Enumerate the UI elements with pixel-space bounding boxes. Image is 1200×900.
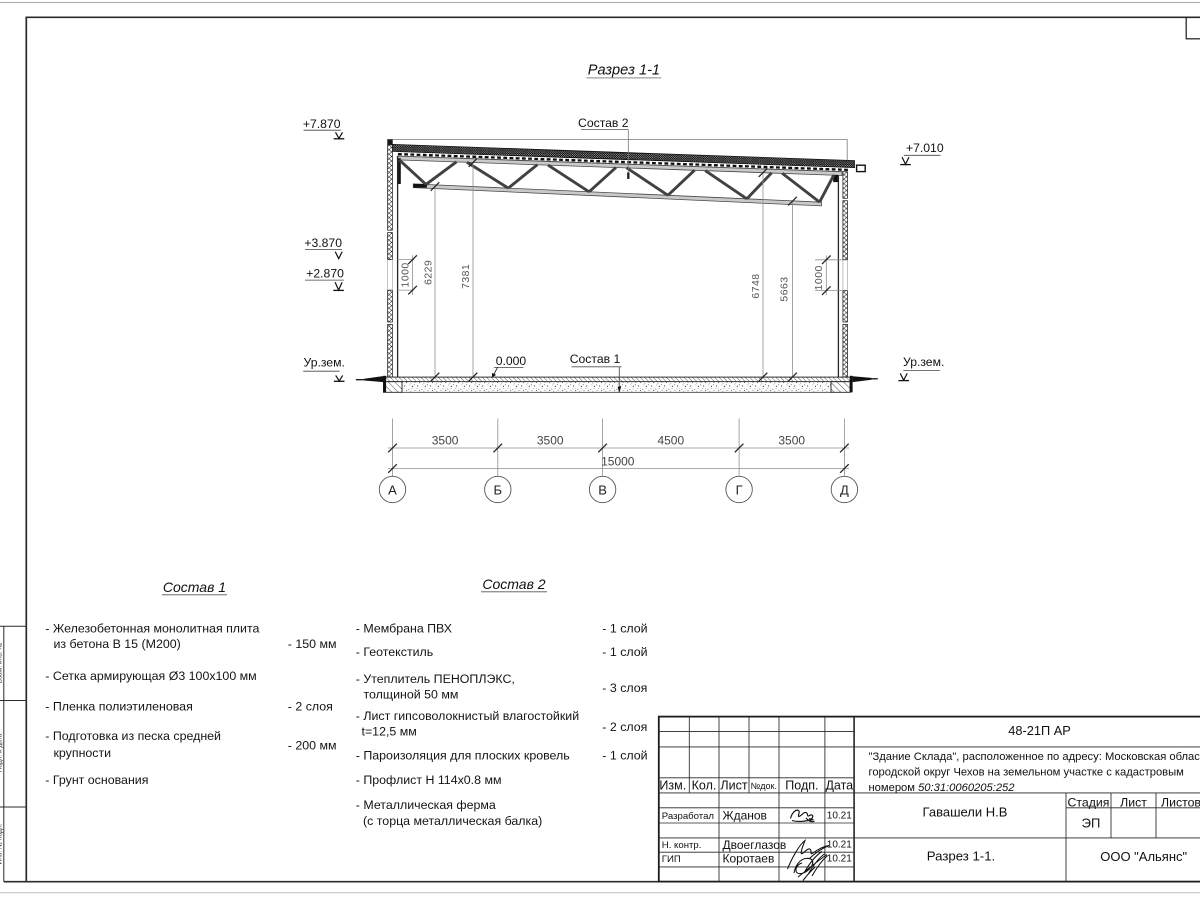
svg-text:Взам. инв. №: Взам. инв. № xyxy=(0,643,4,684)
svg-text:Состав 1: Состав 1 xyxy=(570,352,621,366)
svg-text:Состав 1: Состав 1 xyxy=(163,579,226,595)
svg-text:10.21: 10.21 xyxy=(827,854,852,865)
svg-text:из бетона В 15 (М200): из бетона В 15 (М200) xyxy=(54,637,181,651)
svg-text:4500: 4500 xyxy=(657,433,684,447)
svg-text:- Профлист Н 114х0.8 мм: - Профлист Н 114х0.8 мм xyxy=(356,773,502,787)
svg-text:- Лист гипсоволокнистый влагос: - Лист гипсоволокнистый влагостойкий xyxy=(356,709,579,723)
svg-text:- Утеплитель ПЕНОПЛЭКС,: - Утеплитель ПЕНОПЛЭКС, xyxy=(356,672,515,686)
svg-text:10.21: 10.21 xyxy=(827,810,852,821)
svg-text:+2.870: +2.870 xyxy=(306,267,344,281)
svg-text:Д: Д xyxy=(840,482,849,497)
svg-text:крупности: крупности xyxy=(54,746,112,760)
svg-text:- 1 слой: - 1 слой xyxy=(602,645,647,659)
svg-text:Коротаев: Коротаев xyxy=(723,852,775,866)
svg-text:- Грунт основания: - Грунт основания xyxy=(45,773,148,787)
svg-text:Листов: Листов xyxy=(1161,795,1200,809)
svg-text:Разрез 1-1.: Разрез 1-1. xyxy=(927,849,995,864)
svg-text:- Мембрана ПВХ: - Мембрана ПВХ xyxy=(356,621,452,635)
svg-text:- Сетка армирующая Ø3 100х100: - Сетка армирующая Ø3 100х100 мм xyxy=(45,669,256,683)
svg-text:Гавашели Н.В: Гавашели Н.В xyxy=(923,805,1008,820)
svg-text:Разрез 1-1: Разрез 1-1 xyxy=(588,63,660,79)
svg-text:Кол.: Кол. xyxy=(692,779,717,793)
svg-text:(с торца металлическая балка): (с торца металлическая балка) xyxy=(363,814,542,828)
svg-text:Подп.: Подп. xyxy=(785,779,818,793)
svg-text:Б: Б xyxy=(494,482,503,497)
svg-text:15000: 15000 xyxy=(601,454,635,468)
svg-text:0.000: 0.000 xyxy=(496,354,527,368)
svg-text:- Геотекстиль: - Геотекстиль xyxy=(356,645,433,659)
svg-text:Состав 2: Состав 2 xyxy=(578,116,629,130)
svg-text:Лист: Лист xyxy=(720,779,747,793)
svg-text:3500: 3500 xyxy=(778,433,805,447)
svg-text:- Железобетонная монолитная п: - Железобетонная монолитная плита xyxy=(45,621,259,635)
svg-text:Г: Г xyxy=(736,482,743,497)
svg-text:- 1 слой: - 1 слой xyxy=(602,749,647,763)
svg-text:Состав 2: Состав 2 xyxy=(482,576,545,592)
svg-text:ЭП: ЭП xyxy=(1082,815,1101,830)
svg-text:А: А xyxy=(388,482,397,497)
svg-text:Изм.: Изм. xyxy=(659,779,686,793)
svg-text:толщиной 50 мм: толщиной 50 мм xyxy=(364,688,459,702)
svg-text:- Пароизоляция для плоских кро: - Пароизоляция для плоских кровель xyxy=(356,749,570,763)
svg-text:+7.010: +7.010 xyxy=(906,141,944,155)
svg-text:7381: 7381 xyxy=(461,264,472,289)
svg-text:В: В xyxy=(598,482,607,497)
svg-text:6748: 6748 xyxy=(751,273,762,298)
svg-text:1000: 1000 xyxy=(814,265,825,290)
svg-text:- Подготовка из песка средней: - Подготовка из песка средней xyxy=(45,729,221,743)
svg-text:+3.870: +3.870 xyxy=(304,236,342,250)
svg-text:Разработал: Разработал xyxy=(662,811,714,822)
svg-text:6229: 6229 xyxy=(423,260,434,285)
svg-text:Жданов: Жданов xyxy=(723,809,767,823)
svg-text:- 3 слоя: - 3 слоя xyxy=(602,681,647,695)
svg-text:Дата: Дата xyxy=(825,779,853,793)
svg-text:номером 50:31:0060205:252: номером 50:31:0060205:252 xyxy=(869,782,1016,794)
svg-text:Инв. № подл.: Инв. № подл. xyxy=(0,823,4,864)
svg-text:ГИП: ГИП xyxy=(662,854,681,865)
svg-text:ООО "Альянс": ООО "Альянс" xyxy=(1100,849,1187,864)
svg-text:48-21П АР: 48-21П АР xyxy=(1008,723,1071,738)
svg-text:№док.: №док. xyxy=(751,781,777,791)
svg-text:Н. контр.: Н. контр. xyxy=(662,840,702,851)
svg-text:Подп. и дата: Подп. и дата xyxy=(0,733,4,772)
svg-text:Стадия: Стадия xyxy=(1068,795,1110,809)
svg-text:1000: 1000 xyxy=(400,262,411,287)
svg-text:"Здание Склада", расположенное: "Здание Склада", расположенное по адресу… xyxy=(869,751,1200,763)
svg-text:городской округ Чехов на земел: городской округ Чехов на земельном участ… xyxy=(869,767,1184,779)
svg-text:Лист: Лист xyxy=(1120,795,1147,809)
svg-text:10.21: 10.21 xyxy=(827,839,852,850)
svg-text:Двоеглазов: Двоеглазов xyxy=(723,838,787,852)
svg-text:Ур.зем.: Ур.зем. xyxy=(304,356,345,370)
svg-text:+7.870: +7.870 xyxy=(303,117,341,131)
svg-text:- 2 слоя: - 2 слоя xyxy=(602,720,647,734)
svg-text:- 2 слоя: - 2 слоя xyxy=(288,700,333,714)
svg-text:- 1 слой: - 1 слой xyxy=(602,621,647,635)
svg-text:- 200 мм: - 200 мм xyxy=(288,739,337,753)
svg-text:- 150 мм: - 150 мм xyxy=(288,637,337,651)
svg-text:3500: 3500 xyxy=(537,433,564,447)
svg-text:3500: 3500 xyxy=(432,433,459,447)
svg-text:- Металлическая ферма: - Металлическая ферма xyxy=(356,798,496,812)
svg-text:5663: 5663 xyxy=(780,276,791,301)
svg-text:Ур.зем.: Ур.зем. xyxy=(903,355,944,369)
svg-text:- Пленка полиэтиленовая: - Пленка полиэтиленовая xyxy=(45,700,193,714)
svg-text:t=12,5 мм: t=12,5 мм xyxy=(362,725,417,739)
